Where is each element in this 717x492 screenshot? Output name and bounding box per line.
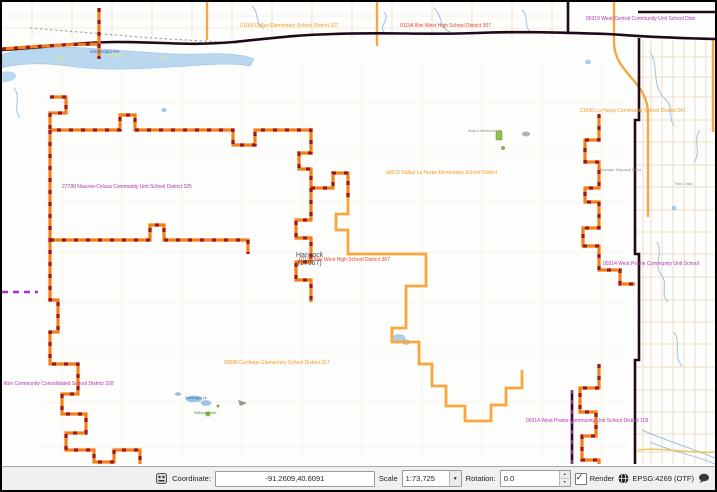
qgis-window: Mississippi Riv 01160 Dallas Elementary … [0,0,717,492]
scale-label: Scale [379,474,398,483]
county-boundary-line [2,2,715,464]
mississippi-river [2,47,254,82]
streams [14,6,715,464]
render-label: Render [590,474,615,483]
school-district-boundary-dashed [2,8,635,464]
rotation-label: Rotation: [466,474,496,483]
elementary-district-boundary [336,198,522,421]
basemap-road-grid-interior [42,62,627,457]
render-checkbox[interactable] [575,473,587,485]
rotation-spinbox[interactable]: 0.0 ▴ ▾ [500,470,571,487]
scale-value: 1:73,725 [403,474,449,483]
epsg-label: EPSG:4269 (OTF) [632,474,694,483]
rotation-value: 0.0 [501,471,559,486]
spin-down-icon[interactable]: ▾ [560,479,570,486]
status-bar: Coordinate: Scale 1:73,725 ▼ Rotation: 0… [2,466,715,490]
spin-up-icon[interactable]: ▴ [560,471,570,479]
render-toggle[interactable]: Render [575,473,615,485]
coordinate-input[interactable] [215,471,375,487]
map-render-layer [2,2,715,466]
chevron-down-icon[interactable]: ▼ [449,471,461,486]
coordinate-capture-icon[interactable] [155,472,168,485]
park-markers [206,131,531,417]
coordinate-label: Coordinate: [172,474,211,483]
map-canvas[interactable]: Mississippi Riv 01160 Dallas Elementary … [2,2,715,466]
messages-icon[interactable] [698,473,710,484]
scale-combobox[interactable]: 1:73,725 ▼ [402,470,462,487]
crs-status[interactable]: EPSG:4269 (OTF) [618,473,694,484]
globe-icon [618,473,629,484]
rotation-spinner[interactable]: ▴ ▾ [559,471,570,486]
